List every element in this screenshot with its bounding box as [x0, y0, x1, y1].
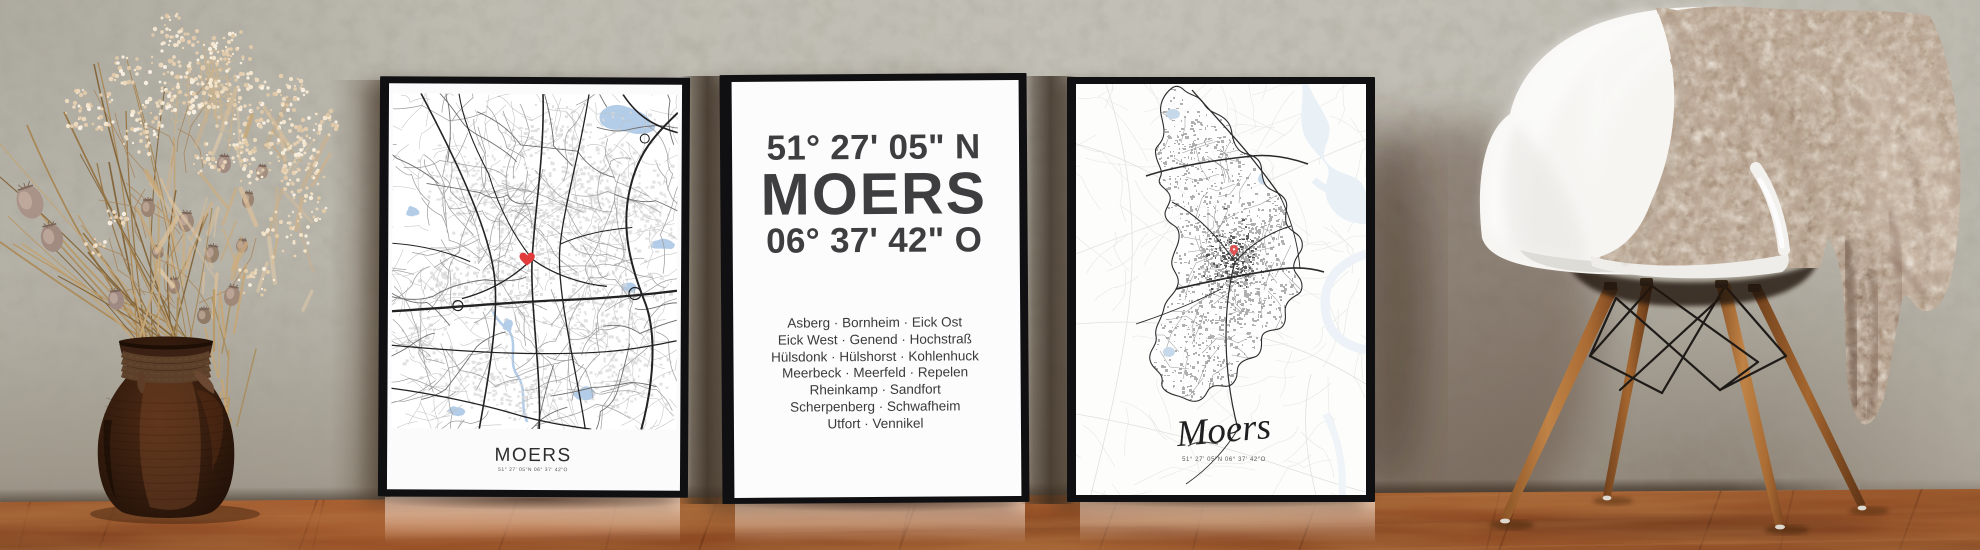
svg-text:51° 27' 05"N 06° 37' 42"O: 51° 27' 05"N 06° 37' 42"O: [1182, 457, 1266, 463]
svg-text:Moers: Moers: [1174, 406, 1273, 455]
